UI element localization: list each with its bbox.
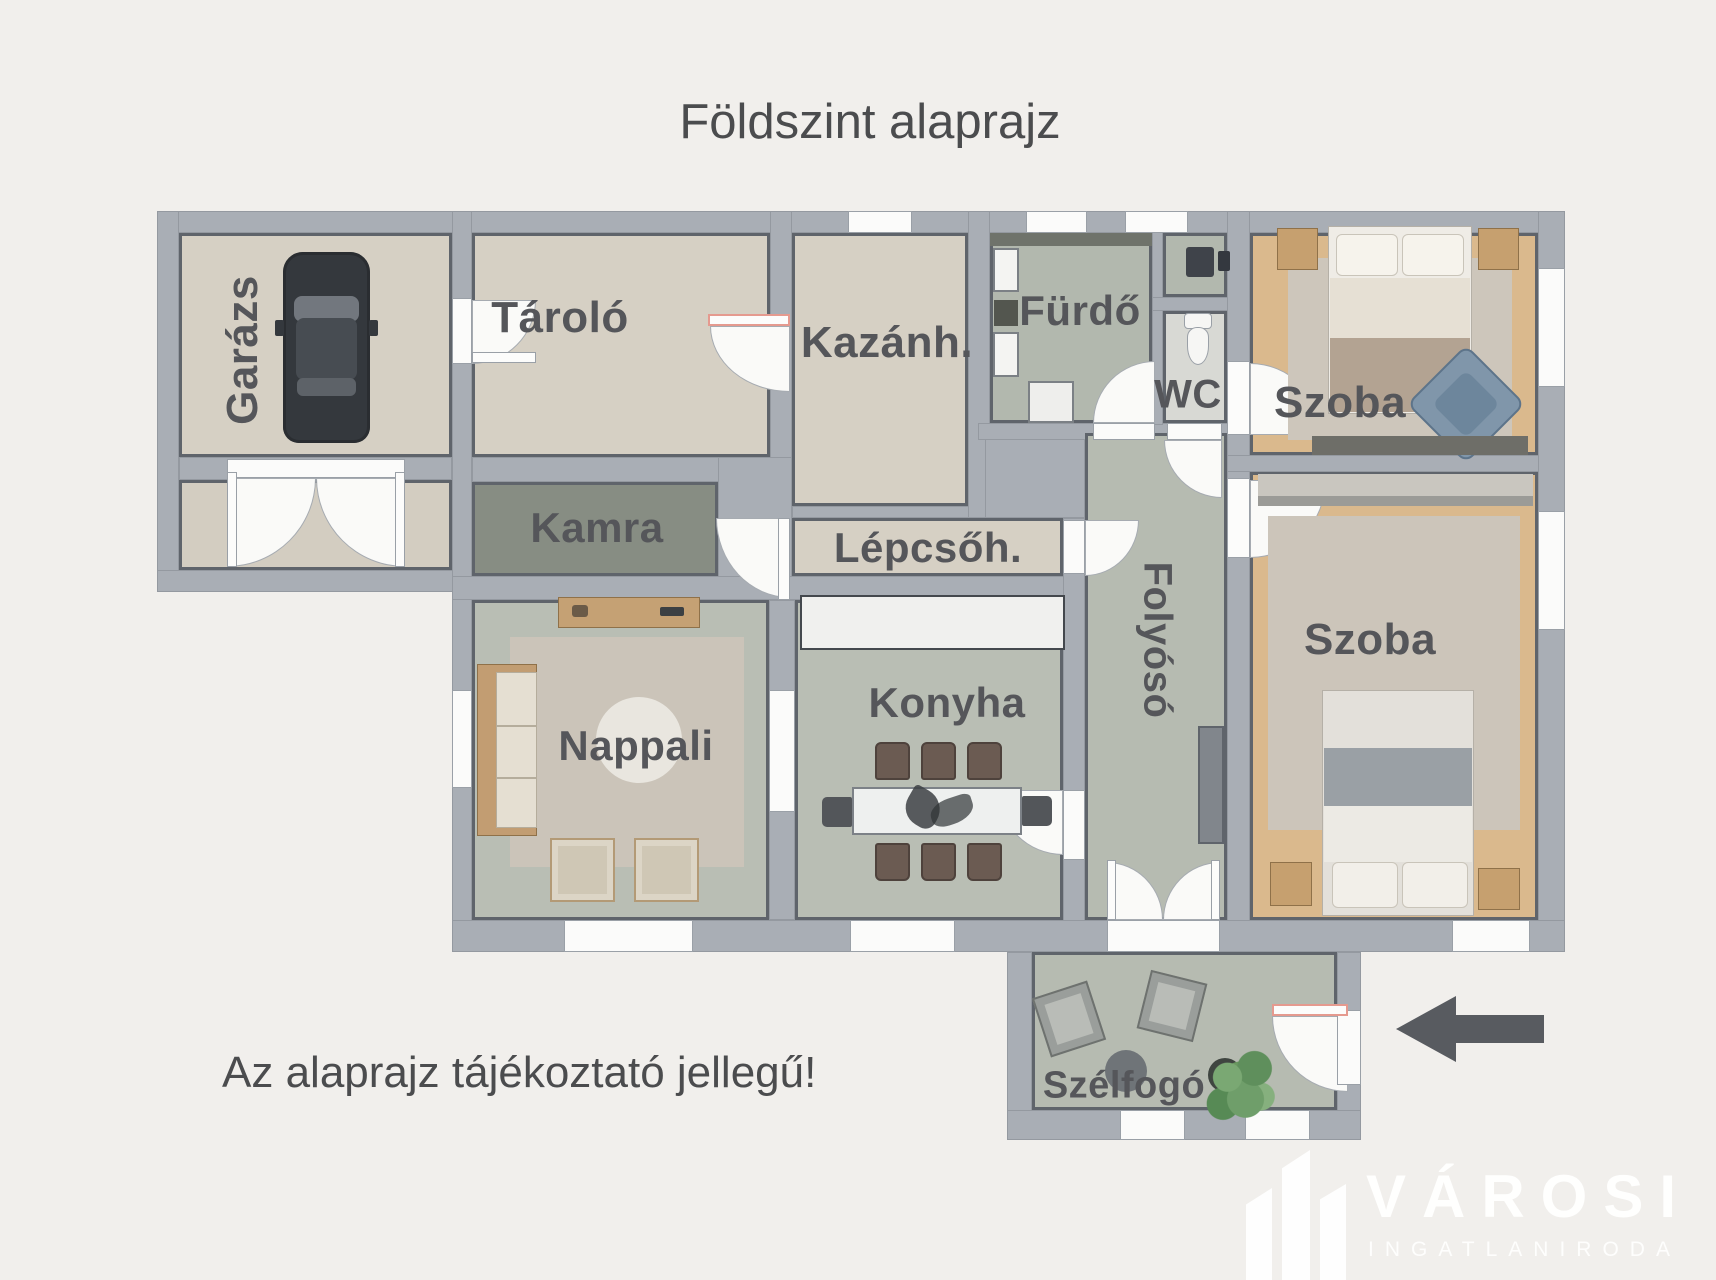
garage-door-opening <box>227 459 405 478</box>
chair <box>967 843 1002 881</box>
duvet <box>1324 806 1472 862</box>
pillow <box>1336 234 1398 276</box>
room-label-wc: WC <box>1154 373 1222 418</box>
window <box>452 690 472 788</box>
wall <box>157 570 472 592</box>
bathroom-shelf <box>990 233 1152 246</box>
car-roof <box>296 318 357 380</box>
sofa-cushions <box>496 672 537 828</box>
window <box>1026 211 1087 233</box>
chair <box>921 742 956 780</box>
door-opening <box>1167 423 1222 440</box>
sink <box>993 248 1019 292</box>
chair <box>822 797 852 827</box>
chair <box>875 742 910 780</box>
sideboard <box>1258 474 1533 506</box>
wall <box>1227 455 1565 472</box>
car-mirror <box>275 320 284 336</box>
door-leaf <box>778 518 790 600</box>
entrance-arrow-icon <box>1396 996 1544 1062</box>
room-label-szoba-also: Szoba <box>1304 615 1436 665</box>
pass-through-opening <box>769 690 795 812</box>
door-opening <box>452 298 472 364</box>
logo-brand: VÁROSI <box>1366 1162 1692 1231</box>
tv-console-item <box>572 605 588 617</box>
door-opening <box>1063 520 1085 574</box>
chair <box>875 843 910 881</box>
window <box>1452 920 1530 952</box>
car-rear-window <box>297 378 356 396</box>
door-leaf <box>1227 478 1250 558</box>
door-opening <box>1093 423 1155 440</box>
wall <box>1227 211 1250 940</box>
logo-subtitle: INGATLANIRODA <box>1368 1238 1681 1262</box>
room-label-kazanhaz: Kazánh. <box>801 318 973 368</box>
room-label-szelfogo: Szélfogó <box>1043 1065 1205 1108</box>
blanket <box>1324 748 1472 806</box>
pillow <box>1402 862 1468 908</box>
window <box>1125 211 1188 233</box>
wall <box>1152 297 1233 311</box>
hall-wardrobe <box>1198 726 1224 844</box>
room-label-nappali: Nappali <box>558 722 713 770</box>
shower-tray <box>1028 381 1074 423</box>
room-label-szoba-felso: Szoba <box>1274 378 1406 428</box>
washing-machine <box>1186 247 1214 277</box>
tv-console-item <box>660 607 684 616</box>
duvet <box>1330 278 1470 338</box>
sink <box>993 332 1019 377</box>
door-opening <box>1107 920 1220 952</box>
garage-door-leaf <box>395 472 405 567</box>
nightstand <box>1478 228 1519 270</box>
car-mirror <box>369 320 378 336</box>
garage-door-leaf <box>227 472 237 567</box>
door-leaf-accent <box>708 314 790 326</box>
logo-building-icon <box>1246 1138 1350 1280</box>
pillow <box>1402 234 1464 276</box>
window <box>1538 268 1565 387</box>
window <box>564 920 693 952</box>
room-label-garazs: Garázs <box>218 275 268 425</box>
entrance-door-opening <box>1337 1010 1361 1085</box>
window <box>1538 511 1565 630</box>
chair <box>1022 796 1052 826</box>
room-garage-porch <box>179 480 452 570</box>
wall <box>985 433 1085 518</box>
washing-machine-hose <box>1218 251 1230 271</box>
window <box>850 920 955 952</box>
room-label-kamra: Kamra <box>530 504 663 552</box>
armchair-seat <box>558 846 607 894</box>
room-label-lepcsohaz: Lépcsőh. <box>834 524 1022 572</box>
disclaimer-text: Az alaprajz tájékoztató jellegű! <box>222 1048 922 1098</box>
room-kazanhaz <box>792 233 968 506</box>
room-label-furdo: Fürdő <box>1019 287 1140 335</box>
nightstand <box>1277 228 1318 270</box>
chair <box>967 742 1002 780</box>
pillow <box>1332 862 1398 908</box>
bench <box>1312 436 1528 455</box>
page-title: Földszint alaprajz <box>480 94 1260 150</box>
door-leaf <box>472 352 536 363</box>
window <box>848 211 912 233</box>
door-leaf <box>1227 361 1250 435</box>
bathroom-cabinet <box>994 300 1018 326</box>
entrance-door-leaf-accent <box>1272 1004 1348 1016</box>
nightstand <box>1478 868 1520 910</box>
door-leaf <box>1107 860 1116 920</box>
armchair-seat <box>642 846 691 894</box>
chair <box>921 843 956 881</box>
kitchen-counter <box>800 595 1065 650</box>
wall <box>1063 518 1085 940</box>
door-opening <box>1063 790 1085 860</box>
wall <box>157 211 179 592</box>
room-label-konyha: Konyha <box>868 679 1025 727</box>
logo: VÁROSI INGATLANIRODA <box>1246 1138 1706 1280</box>
window <box>1120 1110 1185 1140</box>
nightstand <box>1270 862 1312 906</box>
plant <box>1196 1042 1286 1130</box>
room-label-folyoso: Folyósó <box>1135 562 1180 719</box>
room-label-tarolo: Tároló <box>491 293 628 343</box>
door-leaf <box>1211 860 1220 920</box>
toilet-bowl <box>1187 327 1209 365</box>
